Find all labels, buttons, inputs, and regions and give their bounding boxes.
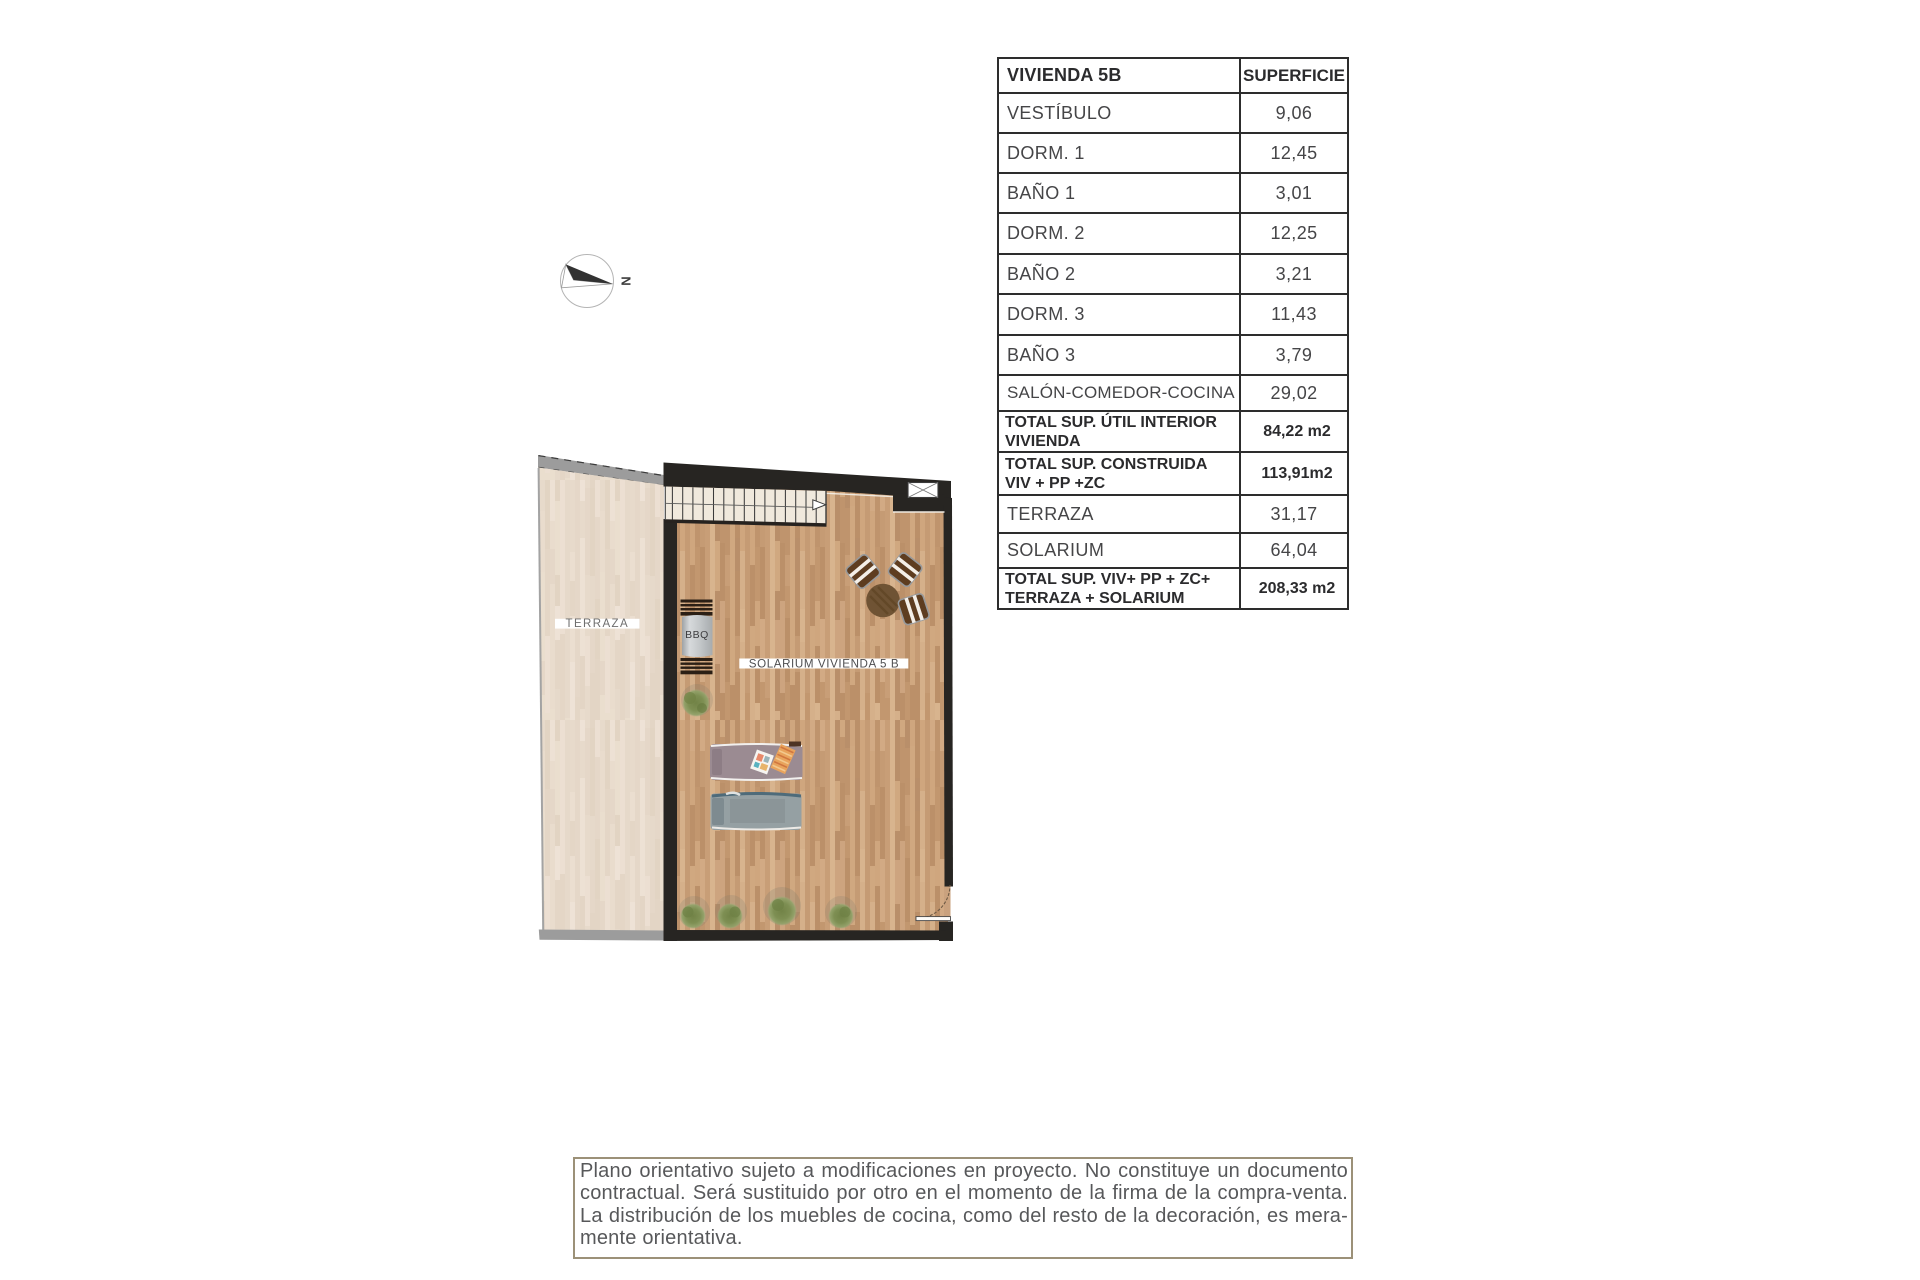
svg-text:N: N xyxy=(619,276,634,285)
svg-text:SOLARIUM VIVIENDA 5 B: SOLARIUM VIVIENDA 5 B xyxy=(749,657,899,670)
svg-text:TERRAZA: TERRAZA xyxy=(566,618,629,630)
svg-text:BBQ: BBQ xyxy=(685,629,709,641)
